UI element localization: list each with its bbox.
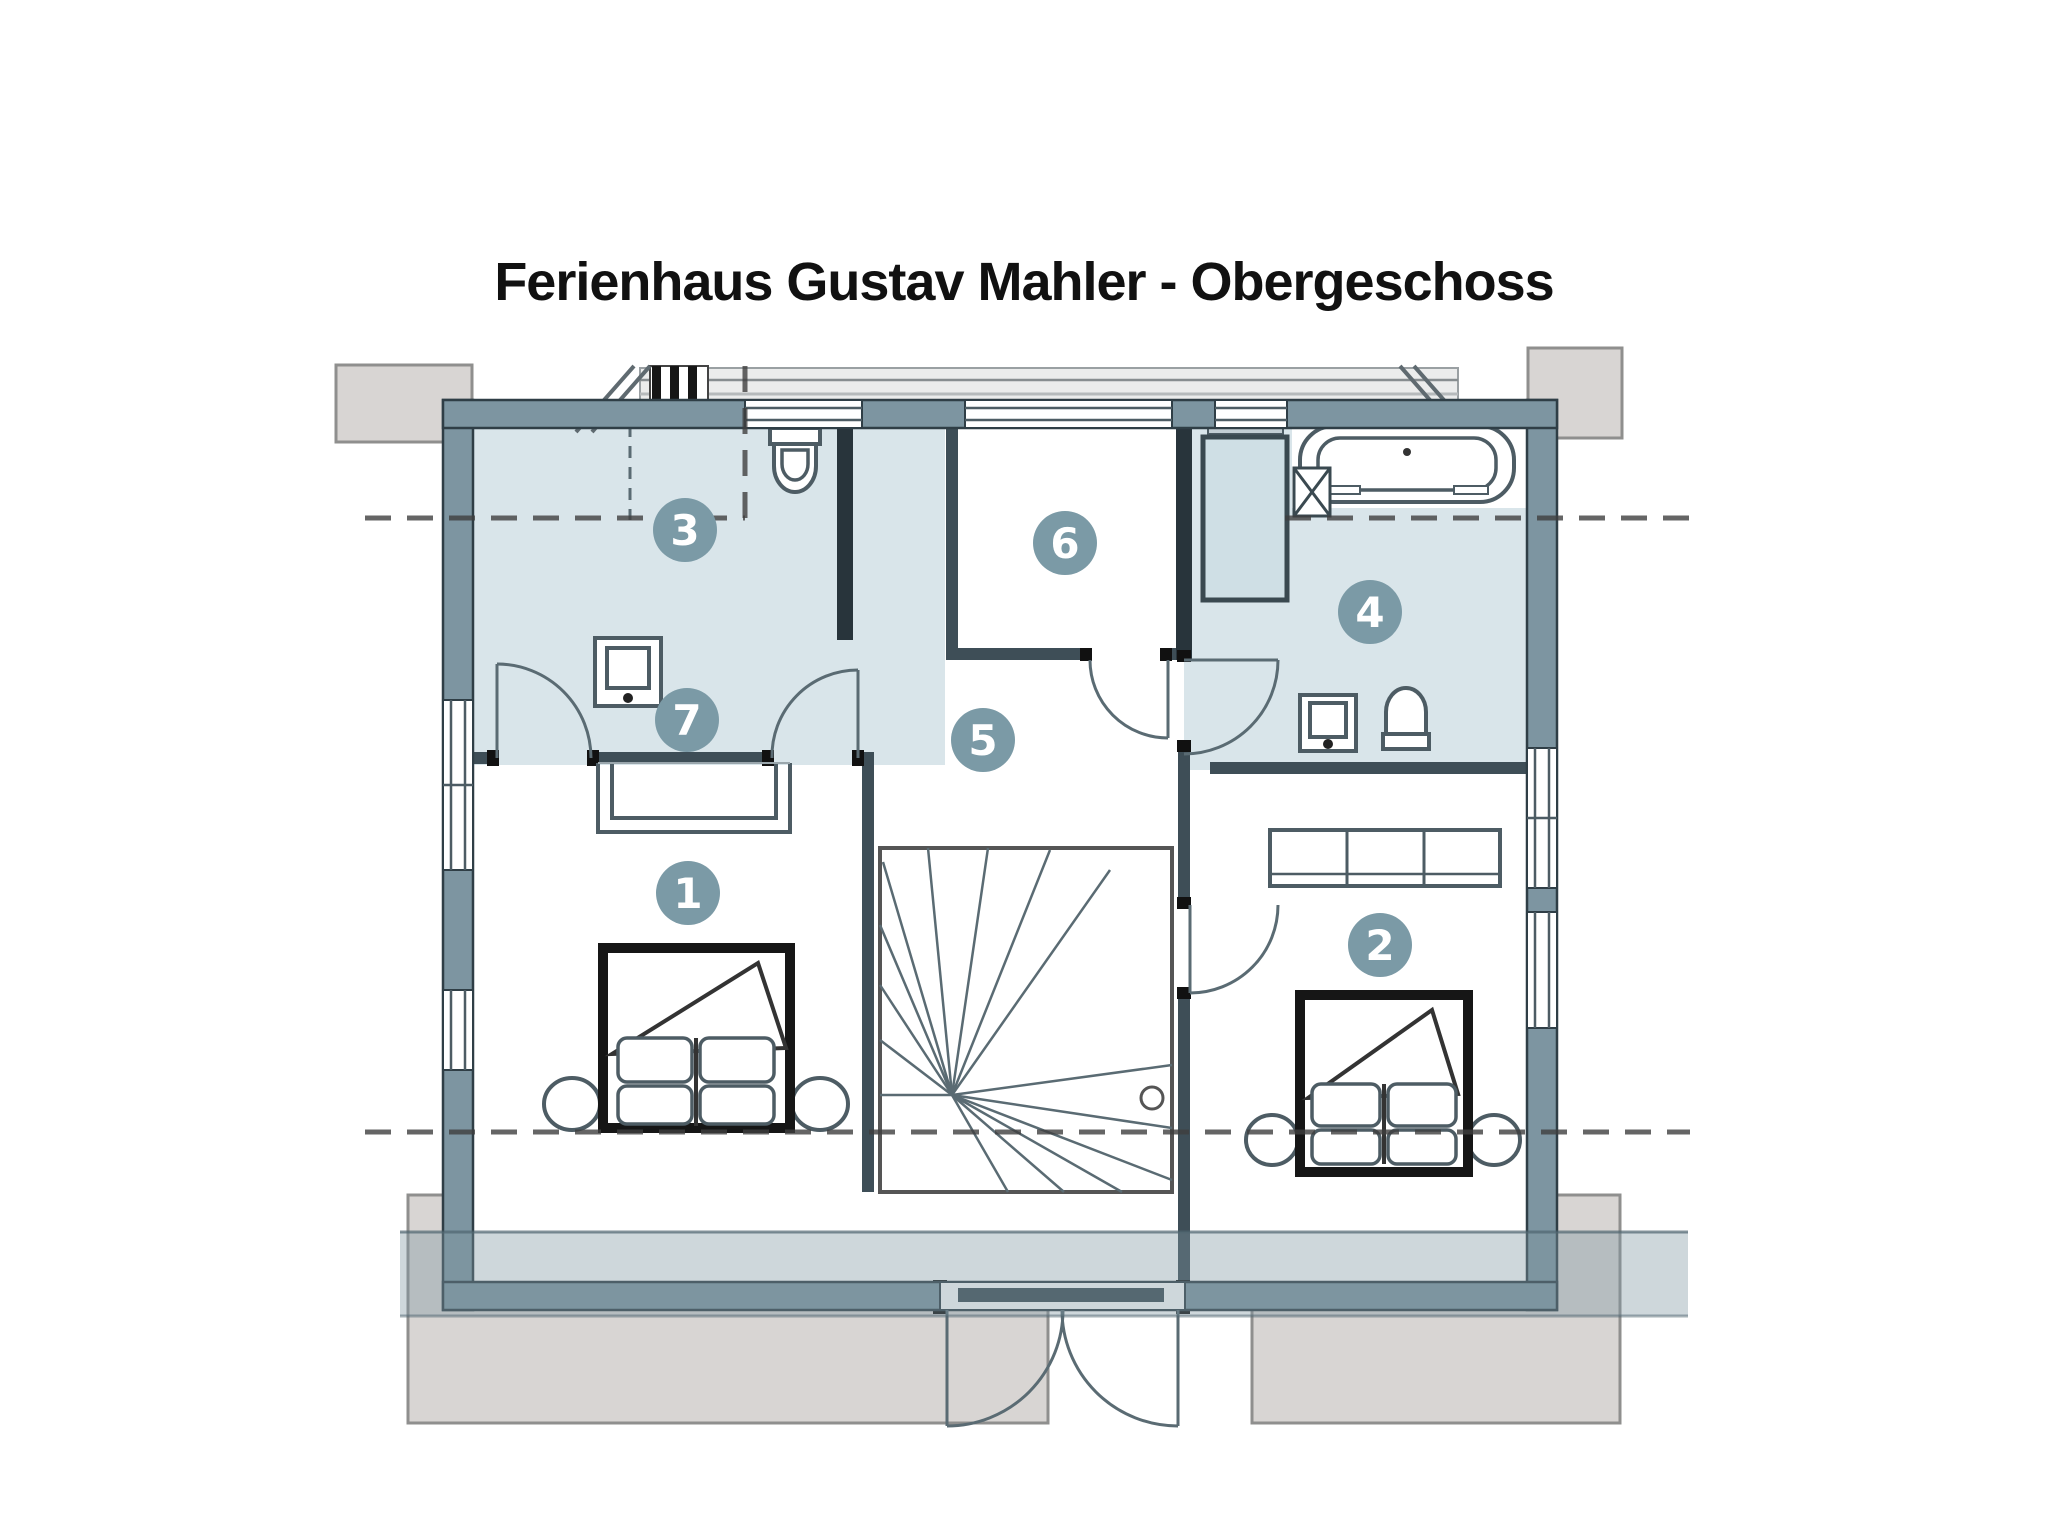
shaft-icon xyxy=(1294,468,1330,516)
page-title: Ferienhaus Gustav Mahler - Obergeschoss xyxy=(494,252,1553,312)
toilet-icon xyxy=(770,428,820,492)
sink-icon xyxy=(1300,695,1356,751)
room-marker-6-label: 6 xyxy=(1050,519,1079,568)
roof-overlay-bottom xyxy=(400,1232,1688,1316)
window-icon-top-3 xyxy=(1215,400,1287,428)
window-icon-left-2 xyxy=(443,990,473,1070)
room-marker-4-label: 4 xyxy=(1355,588,1384,637)
stairs-icon xyxy=(880,848,1172,1192)
window-icon-top-1 xyxy=(745,400,862,428)
wardrobe-icon xyxy=(1270,830,1500,886)
bathtub-icon xyxy=(1300,426,1514,502)
room-marker-5: 5 xyxy=(951,708,1015,772)
window-icon-left-1 xyxy=(443,700,473,870)
room-marker-3-label: 3 xyxy=(670,506,699,555)
toilet-icon xyxy=(1383,688,1429,749)
floorplan-page: 1 2 3 4 5 6 7 Ferienhaus Gustav Mahler -… xyxy=(0,0,2048,1538)
room-marker-2-label: 2 xyxy=(1365,921,1394,970)
window-icon-right-2 xyxy=(1527,912,1557,1028)
room-marker-1-label: 1 xyxy=(673,869,702,918)
shower-icon xyxy=(1203,410,1287,600)
room-marker-3: 3 xyxy=(653,498,717,562)
window-icon-top-2 xyxy=(965,400,1172,428)
window-icon-right-1 xyxy=(1527,748,1557,888)
room-marker-2: 2 xyxy=(1348,913,1412,977)
room-marker-6: 6 xyxy=(1033,511,1097,575)
room-marker-5-label: 5 xyxy=(968,716,997,765)
floorplan-drawing: 1 2 3 4 5 6 7 Ferienhaus Gustav Mahler -… xyxy=(0,0,2048,1538)
room-marker-7: 7 xyxy=(655,688,719,752)
room-marker-4: 4 xyxy=(1338,580,1402,644)
room-marker-1: 1 xyxy=(656,861,720,925)
room-marker-7-label: 7 xyxy=(672,696,701,745)
sink-icon xyxy=(595,638,661,706)
